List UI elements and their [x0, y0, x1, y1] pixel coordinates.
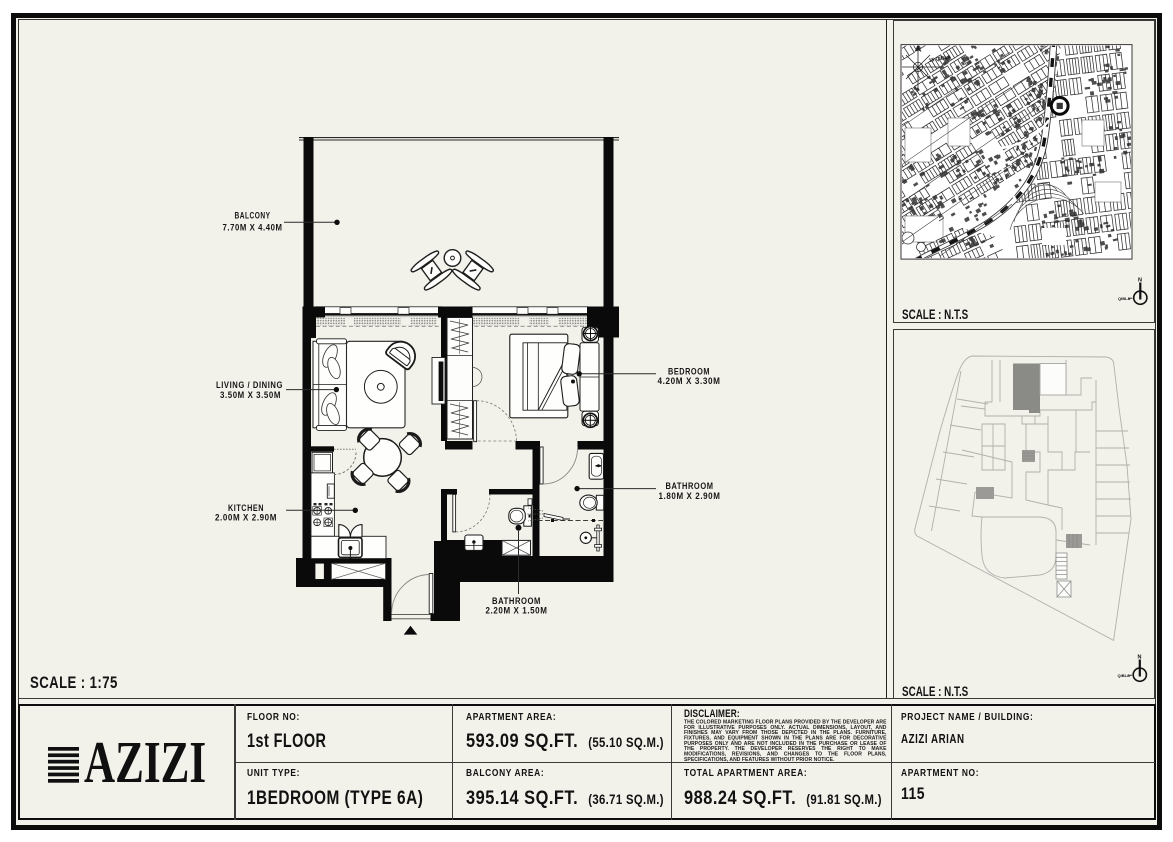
svg-text:4.20M X 3.30M: 4.20M X 3.30M: [658, 375, 721, 386]
svg-text:N: N: [1138, 655, 1142, 661]
svg-text:2.00M X 2.90M: 2.00M X 2.90M: [215, 512, 277, 523]
svg-text:3.50M X 3.50M: 3.50M X 3.50M: [220, 389, 281, 400]
svg-text:2.20M X 1.50M: 2.20M X 1.50M: [486, 604, 548, 615]
svg-text:1.80M X 2.90M: 1.80M X 2.90M: [659, 490, 721, 501]
svg-text:7.70M X 4.40M: 7.70M X 4.40M: [223, 221, 283, 232]
svg-text:N: N: [1138, 278, 1142, 284]
svg-text:BALCONY: BALCONY: [235, 210, 271, 221]
